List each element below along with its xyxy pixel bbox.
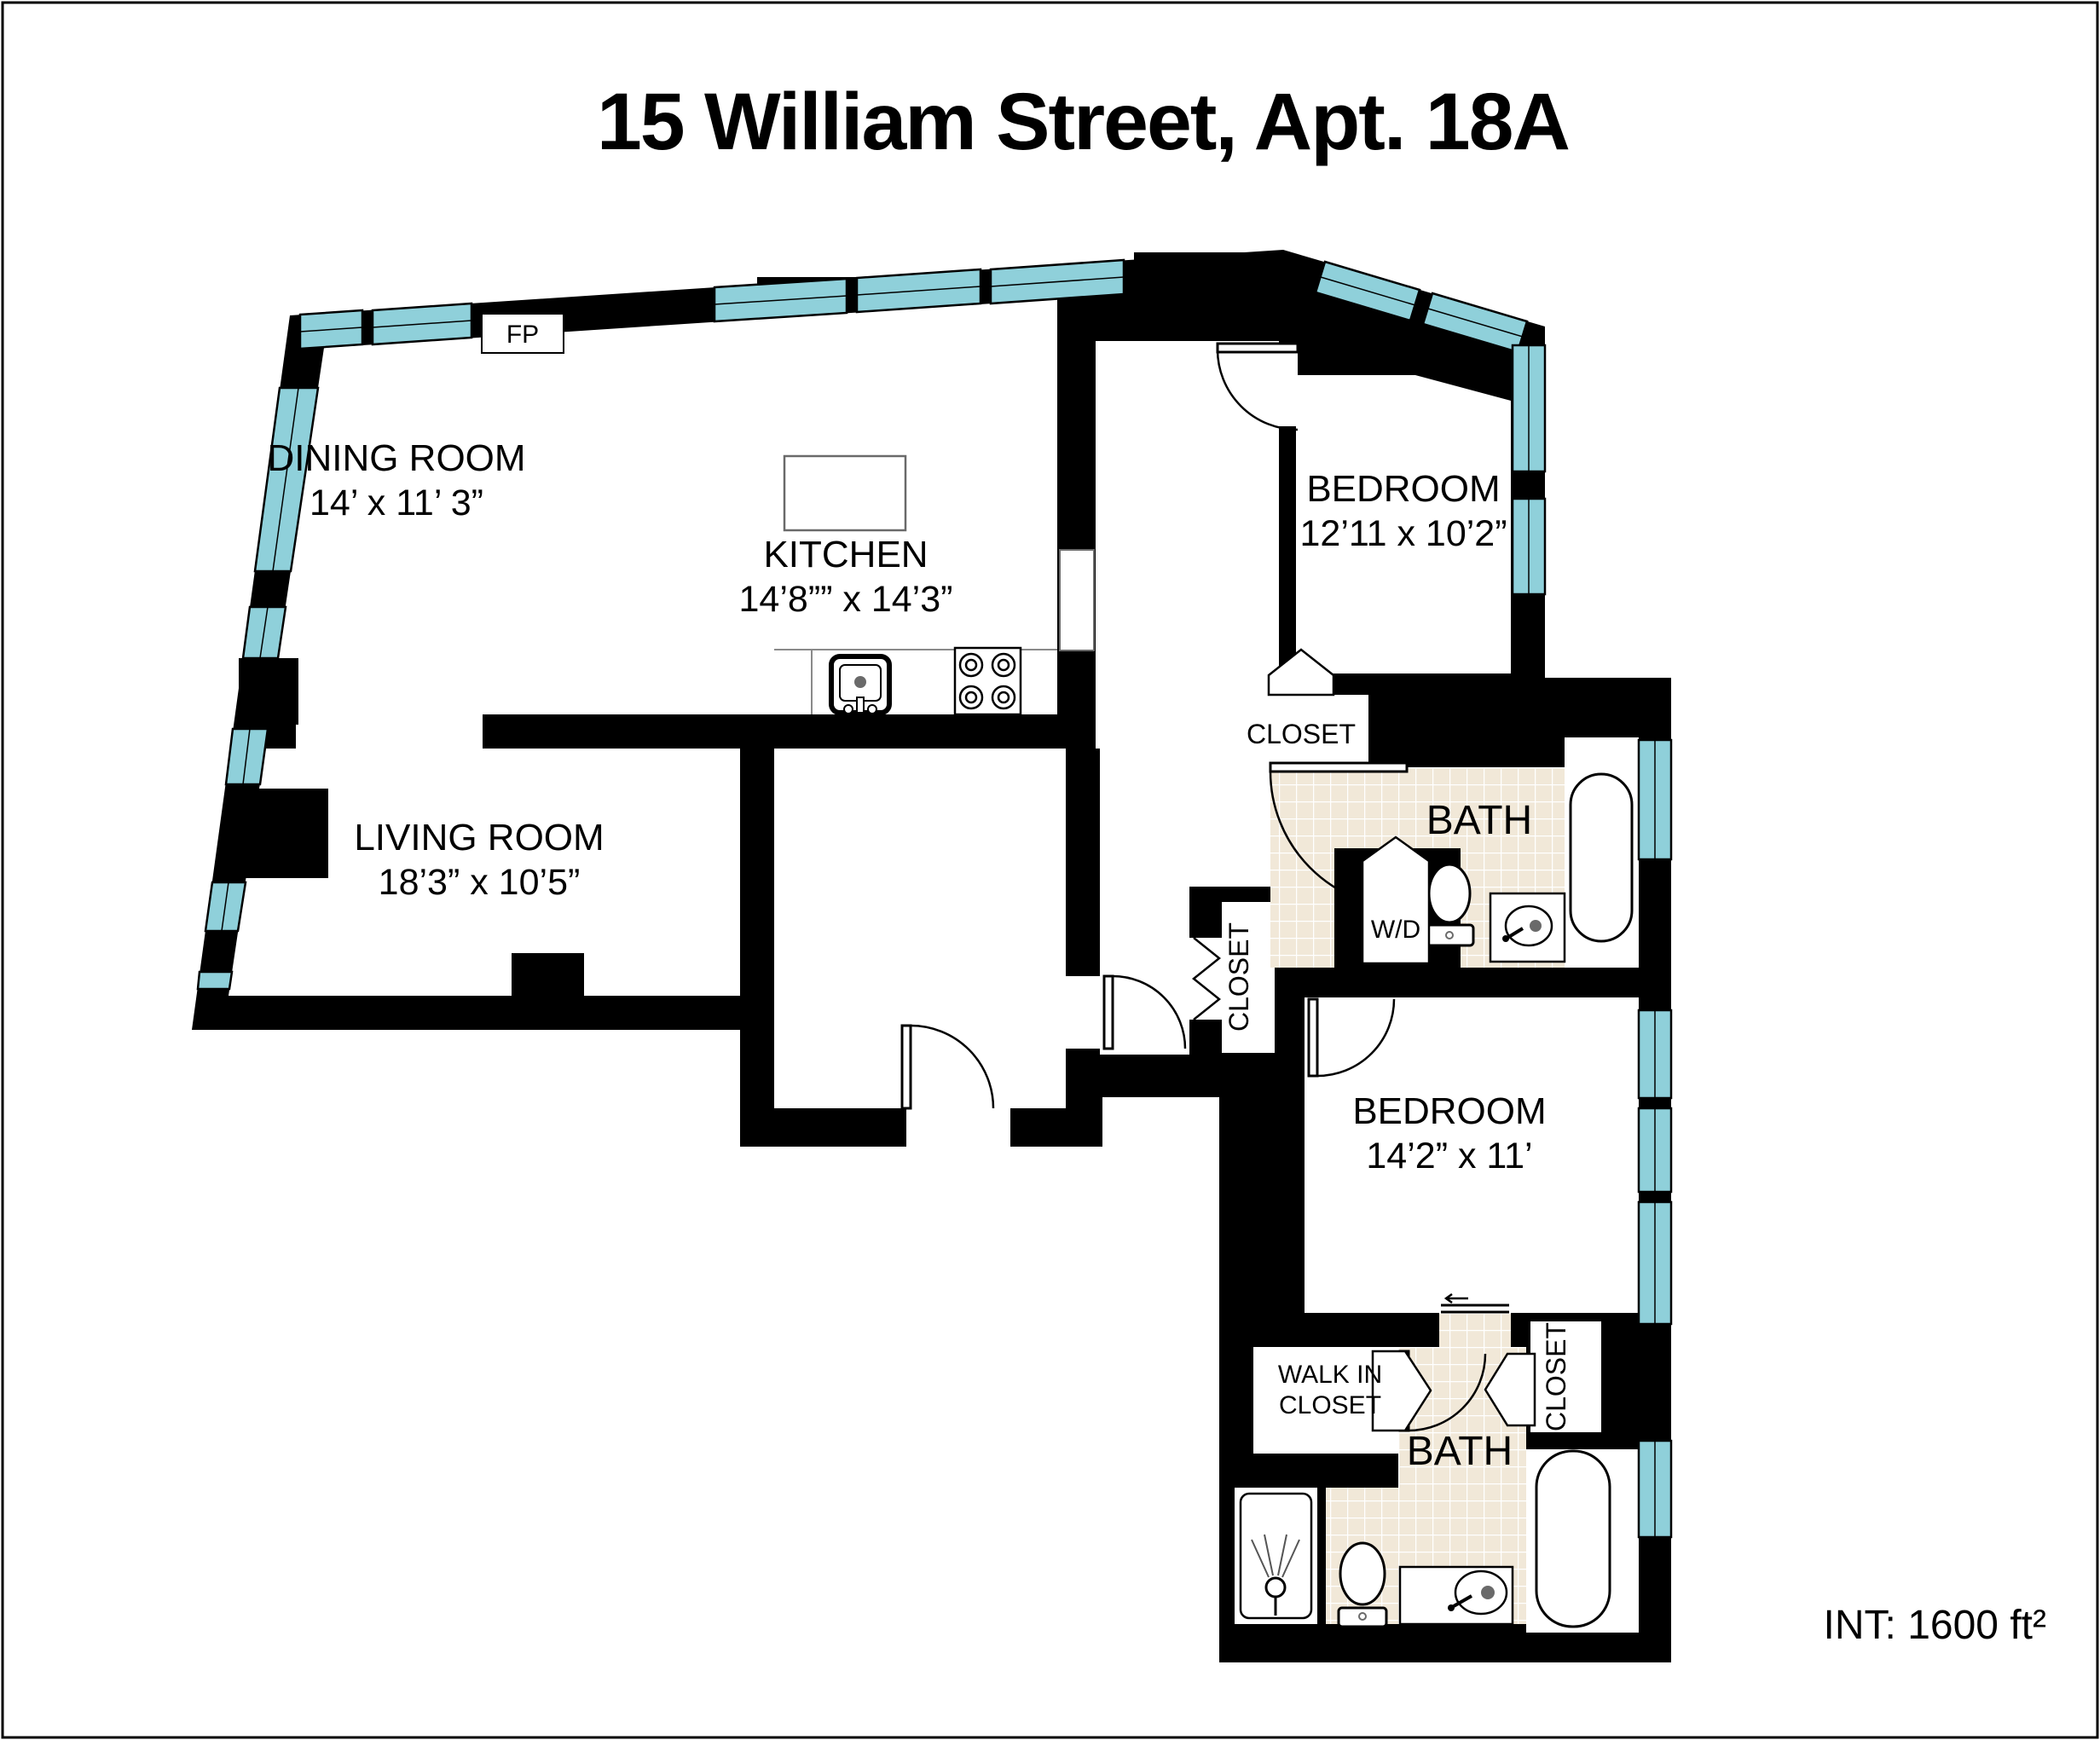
- interior-area-label: INT: 1600 ft²: [1824, 1603, 2046, 1648]
- foyer-floor: [774, 749, 1066, 1108]
- bathtub-icon: [1536, 1451, 1610, 1627]
- passage-floor: [296, 714, 483, 749]
- floor-plan-svg: 15 William Street, Apt. 18A: [0, 0, 2100, 1740]
- room-label-bedroom2: BEDROOM: [1352, 1090, 1546, 1132]
- toilet-icon: [1339, 1543, 1386, 1627]
- wd-label: W/D: [1371, 916, 1420, 944]
- room-label-hall-closet: CLOSET: [1224, 922, 1254, 1032]
- kitchen-island: [784, 456, 905, 530]
- room-label-bedroom1: BEDROOM: [1306, 468, 1500, 510]
- room-label-closet1: CLOSET: [1247, 719, 1356, 749]
- room-label-living: LIVING ROOM: [354, 817, 604, 858]
- room-label-walkin-2: CLOSET: [1279, 1391, 1381, 1419]
- room-dims-dining: 14’ x 11’ 3”: [310, 483, 483, 523]
- room-label-bath1: BATH: [1426, 798, 1532, 843]
- room-label-kitchen: KITCHEN: [763, 534, 928, 575]
- fireplace-label: FP: [482, 314, 564, 353]
- room-label-bath2: BATH: [1407, 1429, 1513, 1474]
- page-title: 15 William Street, Apt. 18A: [597, 77, 1569, 167]
- bedroom1-door-leaf: [1218, 344, 1298, 352]
- sink-icon: [1400, 1567, 1513, 1624]
- washer-dryer-box: W/D: [1362, 837, 1429, 963]
- kitchen-sink-icon: [831, 656, 889, 714]
- hall-door-leaf: [1104, 976, 1113, 1049]
- room-dims-bedroom1: 12’11 x 10’2”: [1299, 513, 1507, 554]
- fp-text: FP: [506, 321, 539, 349]
- entry-door-leaf: [902, 1026, 911, 1108]
- shower-icon: [1241, 1494, 1311, 1618]
- refrigerator: [1060, 550, 1094, 650]
- stove-icon: [955, 648, 1021, 714]
- room-dims-living: 18’3” x 10’5”: [379, 862, 581, 903]
- room-label-dining: DINING ROOM: [267, 437, 525, 479]
- toilet-icon: [1426, 864, 1473, 945]
- sink-icon: [1490, 893, 1565, 962]
- bath1-door-leaf: [1270, 763, 1407, 772]
- room-dims-bedroom2: 14’2” x 11’: [1366, 1136, 1532, 1176]
- bathtub-icon: [1571, 774, 1632, 941]
- bath2-neck: [1439, 1313, 1511, 1347]
- room-label-walkin-1: WALK IN: [1278, 1361, 1382, 1389]
- floor-plan-page: 15 William Street, Apt. 18A: [0, 0, 2100, 1740]
- bedroom2-door-leaf: [1309, 999, 1317, 1076]
- room-label-closet2: CLOSET: [1541, 1322, 1571, 1431]
- room-dims-kitchen: 14’8”” x 14’3”: [739, 579, 953, 620]
